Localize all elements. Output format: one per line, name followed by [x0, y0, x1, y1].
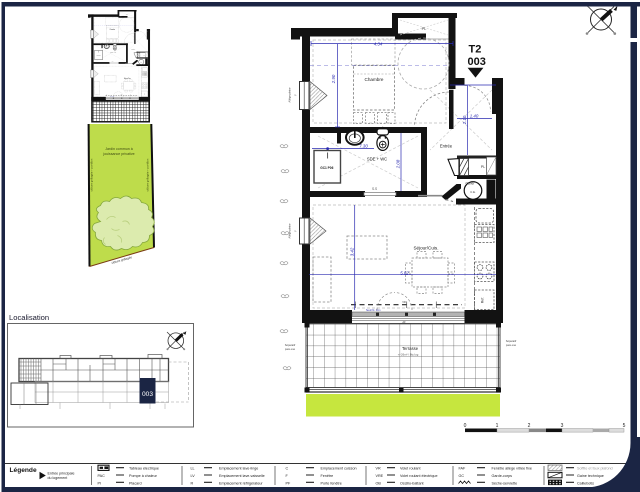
svg-text:Séparatif: Séparatif: [506, 339, 517, 343]
svg-text:Allège pleine: Allège pleine: [288, 87, 292, 102]
svg-text:3: 3: [561, 423, 564, 429]
svg-text:Sèche-serviette: Sèche-serviette: [492, 481, 518, 485]
svg-text:2.90: 2.90: [331, 74, 336, 84]
svg-text:GC: GC: [459, 474, 465, 478]
svg-text:Porte fenêtre: Porte fenêtre: [321, 481, 342, 485]
svg-text:003: 003: [142, 391, 153, 398]
svg-text:clôture grillagée + portillon: clôture grillagée + portillon: [146, 158, 150, 191]
svg-text:+/-26m² / Btc log: +/-26m² / Btc log: [398, 353, 419, 357]
svg-text:VRE: VRE: [376, 474, 384, 478]
svg-text:Cellier: Cellier: [465, 182, 475, 186]
svg-text:Chambre: Chambre: [365, 77, 384, 82]
svg-text:OB: OB: [376, 481, 382, 485]
svg-text:PL: PL: [422, 27, 427, 31]
svg-text:Emplacement lave-linge: Emplacement lave-linge: [219, 467, 258, 471]
svg-text:PL: PL: [481, 165, 485, 169]
svg-text:Fenêtre allège vitrée fixe: Fenêtre allège vitrée fixe: [492, 467, 532, 471]
svg-text:Pompe à chaleur: Pompe à chaleur: [129, 474, 158, 478]
svg-text:du logement: du logement: [48, 476, 68, 480]
svg-text:7.30: 7.30: [359, 144, 368, 149]
svg-text:Caillebotis: Caillebotis: [577, 481, 594, 485]
svg-text:PF: PF: [286, 481, 291, 485]
svg-text:C: C: [286, 467, 289, 471]
svg-text:VR: VR: [376, 467, 381, 471]
svg-text:T2: T2: [469, 43, 482, 55]
svg-text:Volet roulant électrique: Volet roulant électrique: [400, 474, 438, 478]
svg-text:Volet roulant: Volet roulant: [400, 467, 421, 471]
svg-text:Allège pleine: Allège pleine: [288, 223, 292, 238]
svg-text:2.10: 2.10: [462, 115, 467, 125]
svg-text:2.08: 2.08: [396, 159, 401, 169]
svg-text:Oscillo-battant: Oscillo-battant: [400, 481, 424, 485]
svg-text:Garde-corps: Garde-corps: [492, 474, 513, 478]
svg-text:1.40: 1.40: [470, 113, 479, 118]
svg-text:Placard: Placard: [129, 481, 142, 485]
svg-text:FAF: FAF: [459, 467, 467, 471]
svg-text:Légende: Légende: [10, 467, 37, 474]
svg-text:5.82: 5.82: [400, 270, 409, 275]
svg-text:LV: LV: [191, 474, 196, 478]
svg-text:PI: PI: [98, 481, 101, 485]
svg-text:SDE + WC: SDE + WC: [367, 157, 387, 162]
svg-text:C.E.: C.E.: [470, 190, 476, 194]
svg-text:S.S: S.S: [372, 187, 377, 191]
svg-text:jouissance privative: jouissance privative: [102, 152, 134, 156]
svg-text:pare-vue: pare-vue: [285, 347, 296, 351]
svg-text:Localisation: Localisation: [9, 313, 49, 322]
svg-text:LL: LL: [191, 467, 195, 471]
svg-text:Emplacement lave-vaisselle: Emplacement lave-vaisselle: [219, 474, 265, 478]
svg-text:Jardin commun à: Jardin commun à: [105, 147, 133, 151]
svg-text:Terrasse: Terrasse: [402, 346, 419, 351]
svg-text:PAC: PAC: [98, 474, 106, 478]
svg-text:Ref.: Ref.: [481, 297, 485, 304]
svg-text:4.34: 4.34: [374, 41, 383, 46]
svg-text:Entrée principale: Entrée principale: [48, 472, 75, 476]
svg-text:003: 003: [468, 56, 486, 68]
svg-text:1: 1: [496, 423, 499, 429]
svg-text:Entrée: Entrée: [440, 144, 453, 149]
svg-text:3.42: 3.42: [349, 247, 354, 256]
svg-text:pare-vue: pare-vue: [506, 343, 517, 347]
svg-text:GC1 P06: GC1 P06: [320, 166, 333, 170]
svg-text:Gaine technique: Gaine technique: [577, 474, 604, 478]
svg-text:Emplacement réfrigérateur: Emplacement réfrigérateur: [219, 481, 263, 485]
svg-text:Séjour/Cuis.: Séjour/Cuis.: [413, 246, 438, 251]
svg-text:clôture grillagée + portillon: clôture grillagée + portillon: [90, 158, 94, 191]
svg-text:5: 5: [623, 423, 626, 429]
svg-text:Tableau électrique: Tableau électrique: [129, 467, 159, 471]
svg-text:2: 2: [528, 423, 531, 429]
svg-text:0: 0: [464, 423, 467, 429]
svg-text:Séparatif: Séparatif: [285, 343, 296, 347]
svg-text:Soffite et faux plafond: Soffite et faux plafond: [577, 467, 613, 471]
svg-text:Fenêtre: Fenêtre: [321, 474, 334, 478]
svg-text:Emplacement cuisson: Emplacement cuisson: [321, 467, 357, 471]
svg-text:R: R: [191, 481, 194, 485]
svg-text:VR: VR: [402, 300, 406, 304]
